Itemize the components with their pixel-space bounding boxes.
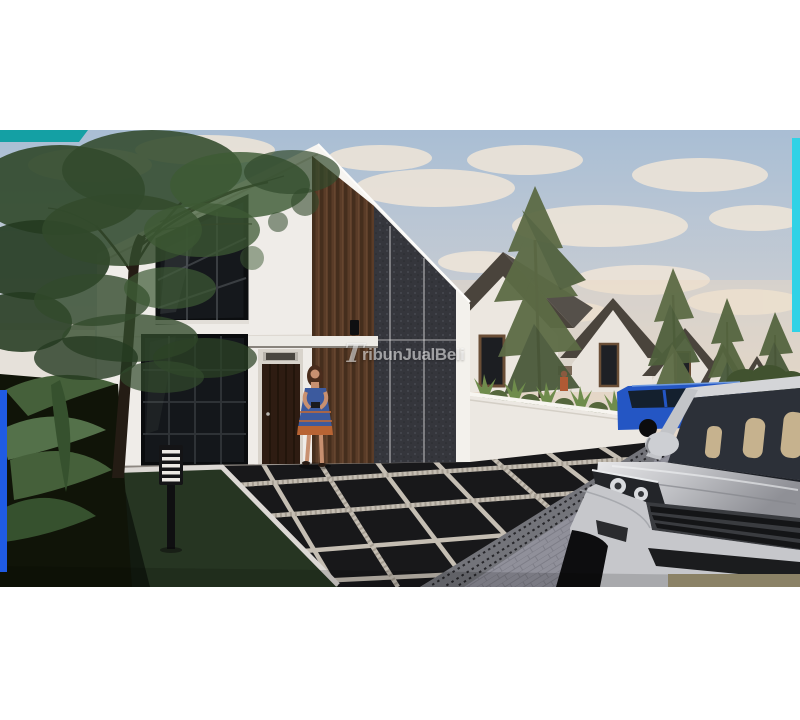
front-door <box>258 349 303 466</box>
teal-accent-bar <box>0 130 88 142</box>
bg-house3-window <box>600 344 618 386</box>
watermark: TribunJualBeli <box>344 341 484 371</box>
distant-person <box>560 371 568 391</box>
phone <box>311 402 320 408</box>
listing-screenshot: TribunJualBeli <box>0 0 800 720</box>
banana-plants <box>0 374 132 587</box>
listing-photo: TribunJualBeli <box>0 130 800 587</box>
watermark-text: ribunJualBeli <box>362 345 465 364</box>
wall-lamp <box>350 320 359 335</box>
letterbox-bottom <box>0 587 800 720</box>
watermark-initial: T <box>343 341 365 367</box>
corner-trim <box>456 290 470 466</box>
blue-accent-strip <box>0 390 7 572</box>
letterbox-top <box>0 0 800 130</box>
cyan-accent-strip <box>792 138 800 332</box>
tan-strip <box>668 574 800 587</box>
door-handle <box>266 412 270 416</box>
